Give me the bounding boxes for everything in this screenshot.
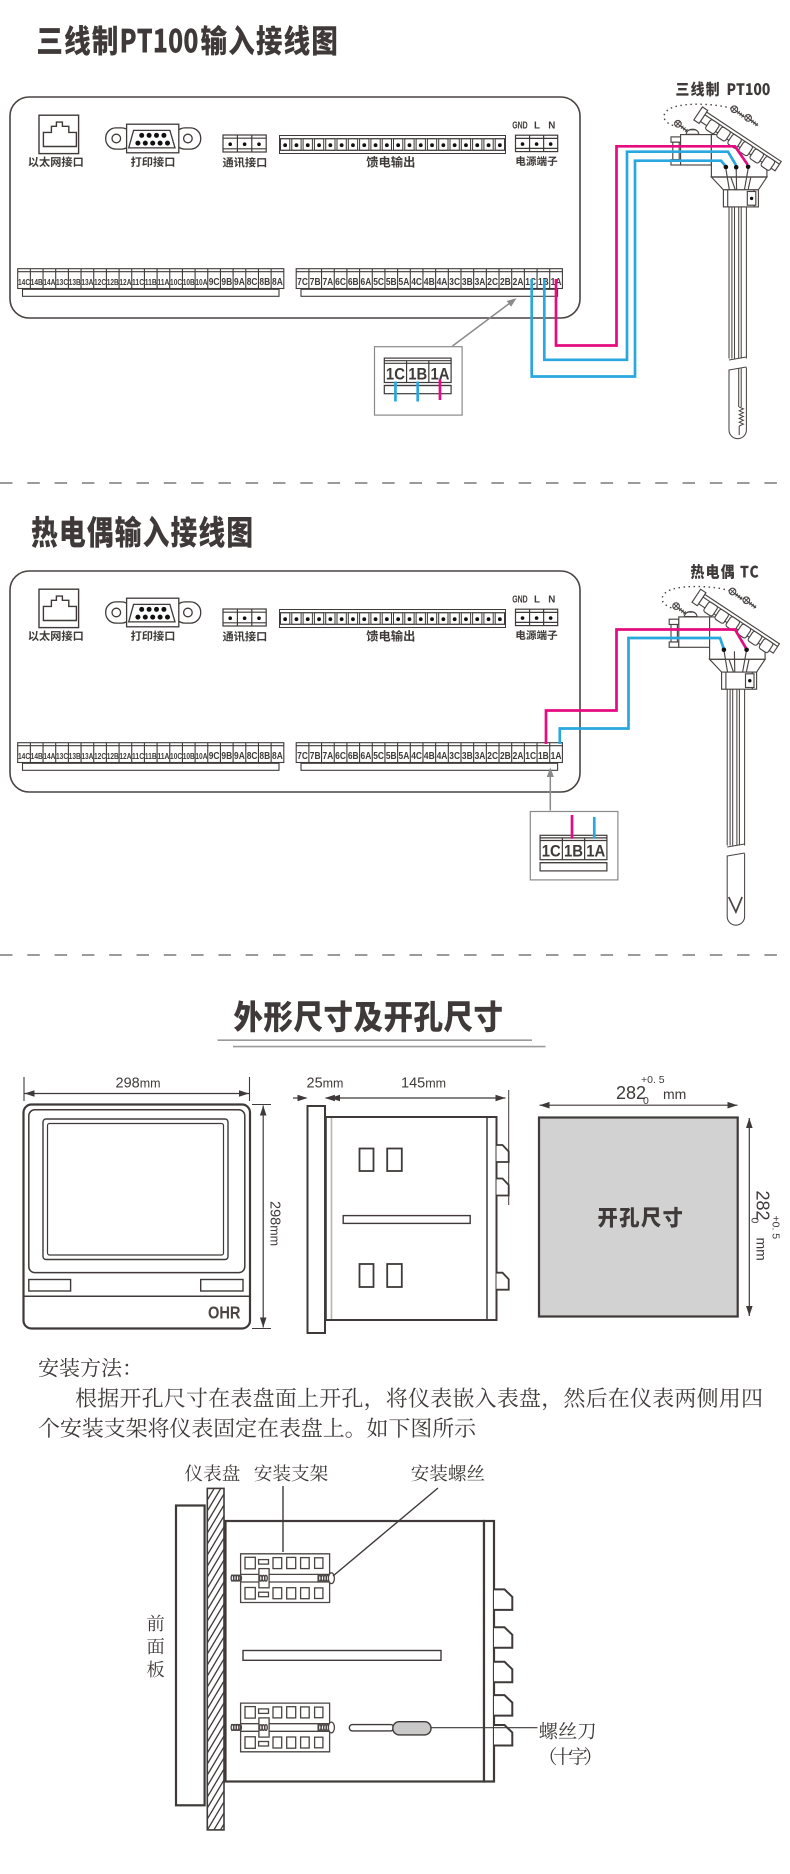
svg-text:11A: 11A (157, 752, 169, 761)
svg-text:N: N (548, 121, 555, 132)
svg-text:12C: 12C (94, 752, 106, 761)
svg-text:6B: 6B (348, 750, 359, 762)
svg-text:11B: 11B (145, 278, 157, 287)
svg-text:7A: 7A (322, 276, 333, 288)
svg-text:1C: 1C (542, 843, 561, 861)
svg-text:4B: 4B (424, 750, 435, 762)
svg-text:5B: 5B (386, 750, 397, 762)
svg-text:8C: 8C (247, 276, 258, 288)
svg-text:2B: 2B (500, 750, 511, 762)
svg-text:mm: mm (754, 1238, 770, 1261)
svg-text:11C: 11C (132, 752, 144, 761)
svg-text:L: L (534, 121, 540, 132)
svg-text:3B: 3B (462, 750, 473, 762)
svg-text:N: N (548, 595, 555, 606)
svg-text:9B: 9B (221, 276, 232, 288)
svg-text:4A: 4A (437, 276, 448, 288)
svg-text:1A: 1A (551, 750, 562, 762)
svg-text:1B: 1B (564, 843, 583, 861)
svg-text:6A: 6A (361, 750, 372, 762)
svg-text:4C: 4C (411, 276, 422, 288)
svg-text:8C: 8C (247, 750, 258, 762)
svg-text:12B: 12B (107, 752, 119, 761)
svg-text:2A: 2A (513, 750, 524, 762)
svg-text:11C: 11C (132, 278, 144, 287)
svg-text:25mm: 25mm (307, 1076, 344, 1092)
svg-text:12A: 12A (119, 752, 131, 761)
svg-text:7C: 7C (297, 276, 308, 288)
svg-text:9A: 9A (234, 750, 245, 762)
svg-text:+0. 5: +0. 5 (641, 1074, 665, 1086)
svg-text:1C: 1C (525, 750, 536, 762)
svg-text:5C: 5C (373, 276, 384, 288)
svg-text:4B: 4B (424, 276, 435, 288)
svg-text:3C: 3C (449, 276, 460, 288)
svg-text:9C: 9C (209, 750, 220, 762)
svg-text:1C: 1C (386, 365, 405, 383)
svg-text:5C: 5C (373, 750, 384, 762)
svg-text:9C: 9C (209, 276, 220, 288)
svg-text:11B: 11B (145, 752, 157, 761)
svg-text:6C: 6C (335, 276, 346, 288)
svg-text:GND: GND (512, 595, 528, 606)
svg-text:8B: 8B (259, 276, 270, 288)
svg-text:13B: 13B (69, 752, 81, 761)
svg-text:7B: 7B (310, 750, 321, 762)
svg-text:298mm: 298mm (116, 1076, 161, 1092)
svg-text:14A: 14A (43, 752, 55, 761)
svg-text:8A: 8A (272, 750, 283, 762)
svg-text:10C: 10C (170, 752, 182, 761)
svg-text:13C: 13C (56, 278, 68, 287)
svg-text:14C: 14C (18, 752, 30, 761)
svg-text:13B: 13B (69, 278, 81, 287)
svg-text:13A: 13A (81, 278, 93, 287)
svg-text:mm: mm (663, 1086, 686, 1102)
svg-text:L: L (534, 595, 540, 606)
svg-text:10C: 10C (170, 278, 182, 287)
svg-text:10B: 10B (183, 278, 195, 287)
svg-text:1B: 1B (538, 750, 549, 762)
svg-text:3A: 3A (475, 276, 486, 288)
svg-text:8B: 8B (259, 750, 270, 762)
svg-text:282: 282 (753, 1191, 773, 1221)
svg-text:8A: 8A (272, 276, 283, 288)
svg-text:14A: 14A (43, 278, 55, 287)
svg-text:0: 0 (749, 1218, 761, 1224)
svg-text:4A: 4A (437, 750, 448, 762)
svg-text:14C: 14C (18, 278, 30, 287)
svg-text:4C: 4C (411, 750, 422, 762)
svg-text:11A: 11A (157, 278, 169, 287)
svg-text:1A: 1A (586, 843, 605, 861)
svg-text:1B: 1B (408, 365, 427, 383)
svg-text:6B: 6B (348, 276, 359, 288)
svg-text:7C: 7C (297, 750, 308, 762)
svg-text:10B: 10B (183, 752, 195, 761)
svg-text:12C: 12C (94, 278, 106, 287)
svg-text:2C: 2C (487, 276, 498, 288)
svg-text:145mm: 145mm (401, 1076, 446, 1092)
svg-text:13A: 13A (81, 752, 93, 761)
svg-text:12A: 12A (119, 278, 131, 287)
svg-text:5B: 5B (386, 276, 397, 288)
svg-text:2B: 2B (500, 276, 511, 288)
svg-text:6C: 6C (335, 750, 346, 762)
svg-text:9B: 9B (221, 750, 232, 762)
svg-text:12B: 12B (107, 278, 119, 287)
svg-text:14B: 14B (31, 752, 43, 761)
svg-text:14B: 14B (31, 278, 43, 287)
svg-text:10A: 10A (195, 278, 207, 287)
svg-text:3C: 3C (449, 750, 460, 762)
svg-text:5A: 5A (399, 276, 410, 288)
svg-text:298mm: 298mm (267, 1201, 283, 1246)
svg-text:10A: 10A (195, 752, 207, 761)
svg-text:13C: 13C (56, 752, 68, 761)
svg-text:OHR: OHR (208, 1303, 241, 1323)
svg-text:6A: 6A (361, 276, 372, 288)
svg-text:GND: GND (512, 121, 528, 132)
svg-text:2C: 2C (487, 750, 498, 762)
svg-text:5A: 5A (399, 750, 410, 762)
svg-text:3A: 3A (475, 750, 486, 762)
svg-text:3B: 3B (462, 276, 473, 288)
svg-text:+0. 5: +0. 5 (770, 1216, 782, 1240)
svg-text:282: 282 (616, 1083, 646, 1103)
svg-text:9A: 9A (234, 276, 245, 288)
svg-text:7B: 7B (310, 276, 321, 288)
svg-text:2A: 2A (513, 276, 524, 288)
svg-text:7A: 7A (322, 750, 333, 762)
